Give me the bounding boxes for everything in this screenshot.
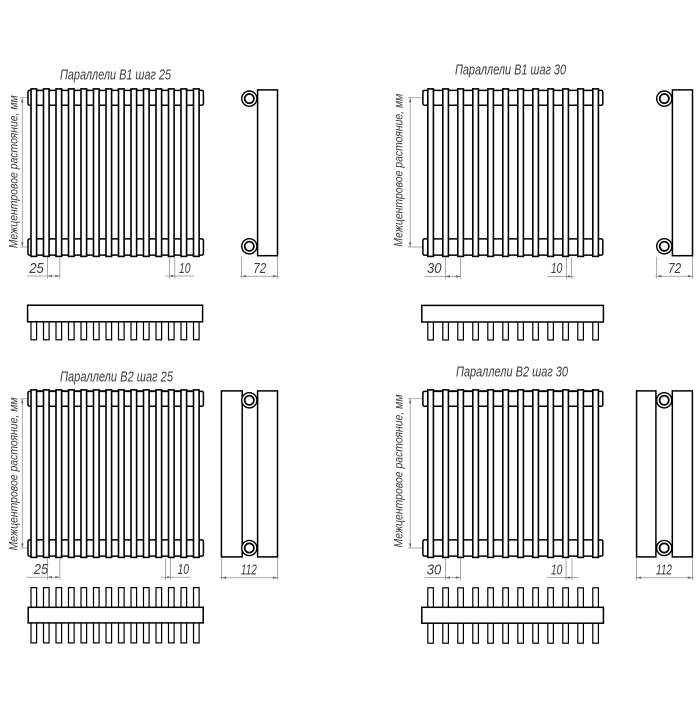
svg-text:Параллели В2 шаг 30: Параллели В2 шаг 30 — [456, 364, 568, 380]
svg-text:112: 112 — [241, 562, 257, 579]
svg-text:25: 25 — [28, 260, 44, 277]
svg-text:10: 10 — [551, 260, 563, 277]
svg-text:72: 72 — [253, 260, 267, 277]
svg-text:10: 10 — [179, 260, 191, 277]
svg-text:112: 112 — [656, 562, 672, 579]
svg-text:30: 30 — [427, 260, 442, 277]
svg-text:25: 25 — [33, 561, 49, 578]
svg-text:Параллели В2 шаг 25: Параллели В2 шаг 25 — [60, 369, 174, 385]
svg-text:Межцентровое растояние, мм: Межцентровое растояние, мм — [8, 397, 20, 550]
svg-text:10: 10 — [551, 561, 563, 578]
svg-text:30: 30 — [427, 561, 442, 578]
svg-text:Межцентровое растояние, мм: Межцентровое растояние, мм — [394, 94, 406, 247]
svg-text:Параллели В1 шаг 25: Параллели В1 шаг 25 — [60, 68, 172, 84]
svg-text:Параллели В1 шаг 30: Параллели В1 шаг 30 — [455, 62, 566, 78]
svg-text:10: 10 — [178, 561, 190, 578]
svg-text:72: 72 — [668, 260, 682, 277]
svg-text:Межцентровое растояние, мм: Межцентровое растояние, мм — [394, 394, 406, 547]
svg-text:Межцентровое растояние, мм: Межцентровое растояние, мм — [8, 95, 20, 248]
